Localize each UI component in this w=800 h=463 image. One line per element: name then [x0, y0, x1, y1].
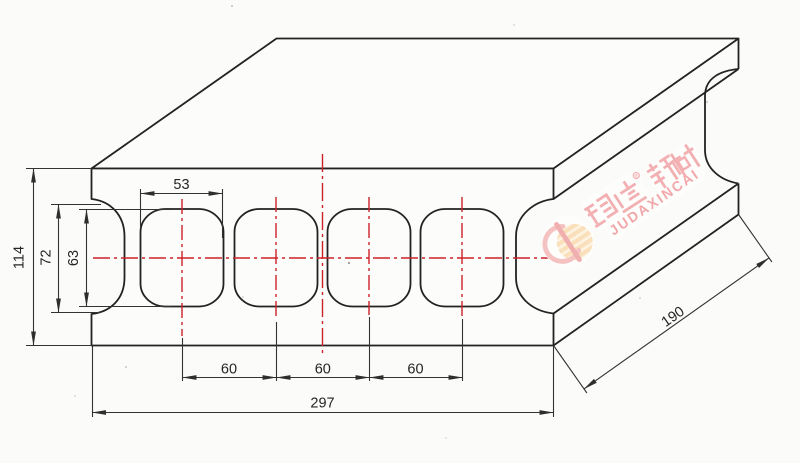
svg-text:60: 60	[315, 362, 331, 378]
svg-text:114: 114	[12, 246, 28, 269]
svg-text:53: 53	[173, 177, 189, 193]
svg-text:72: 72	[39, 249, 55, 265]
svg-text:60: 60	[221, 362, 237, 378]
svg-text:63: 63	[66, 250, 82, 266]
svg-text:297: 297	[310, 396, 334, 412]
svg-text:60: 60	[407, 362, 423, 378]
